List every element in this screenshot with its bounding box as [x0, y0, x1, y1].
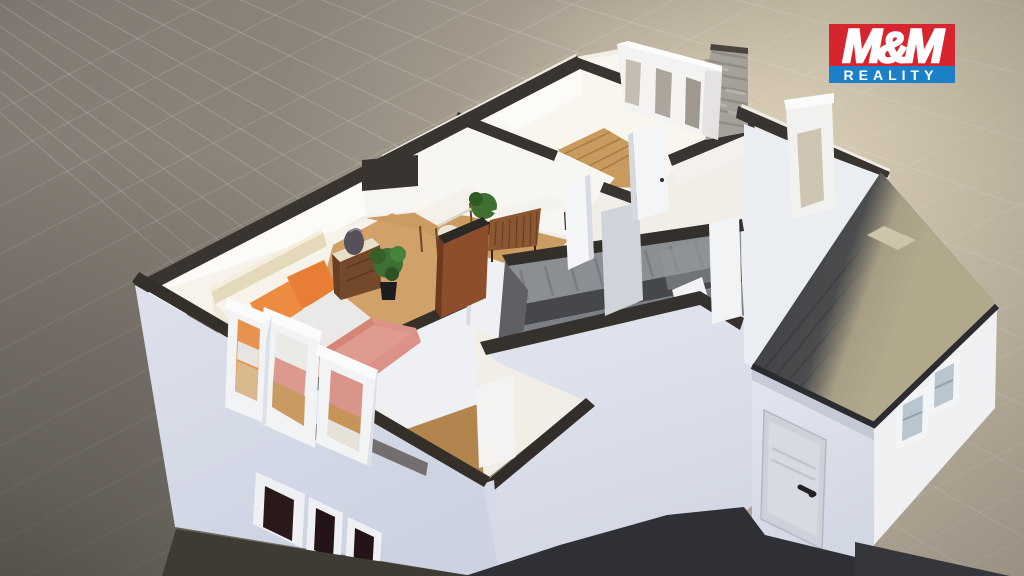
- svg-text:M&M: M&M: [842, 19, 944, 72]
- svg-text:REALITY: REALITY: [844, 67, 939, 83]
